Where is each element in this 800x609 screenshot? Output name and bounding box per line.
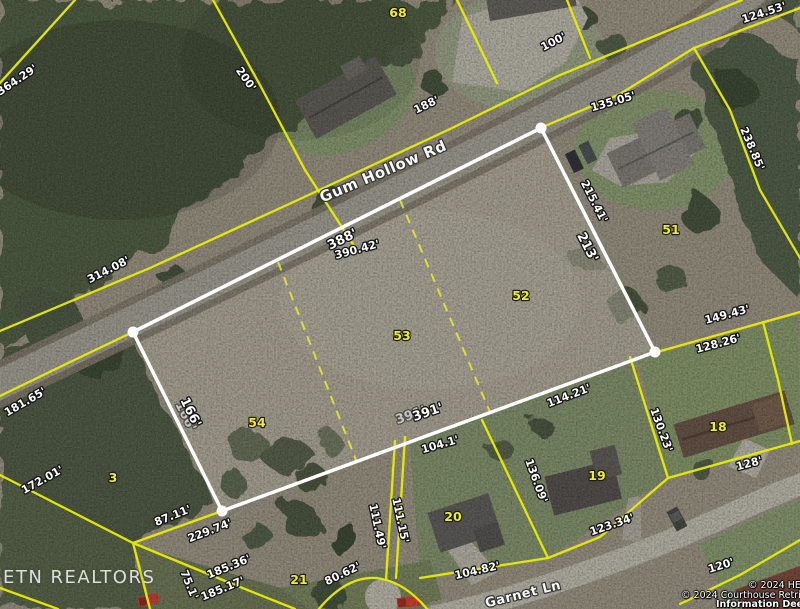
parcel-21: 21 [290, 572, 307, 587]
parcel-3: 3 [109, 470, 118, 485]
parcel-18: 18 [709, 419, 726, 434]
parcel-54: 54 [248, 415, 266, 430]
aerial-parcel-map[interactable]: 364.29'200'68188'100'124.53'135.05'238.8… [0, 0, 800, 609]
map-canvas: 364.29'200'68188'100'124.53'135.05'238.8… [0, 0, 800, 609]
parcel-52: 52 [512, 288, 529, 303]
parcel-20: 20 [444, 509, 462, 524]
parcel-51: 51 [662, 222, 679, 237]
copyright-disclaimer: Information Deemed [716, 599, 800, 609]
parcel-53: 53 [393, 328, 410, 343]
parcel-68: 68 [389, 5, 406, 20]
parcel-19: 19 [588, 468, 605, 483]
realtor-watermark: ETN REALTORS [3, 567, 155, 588]
